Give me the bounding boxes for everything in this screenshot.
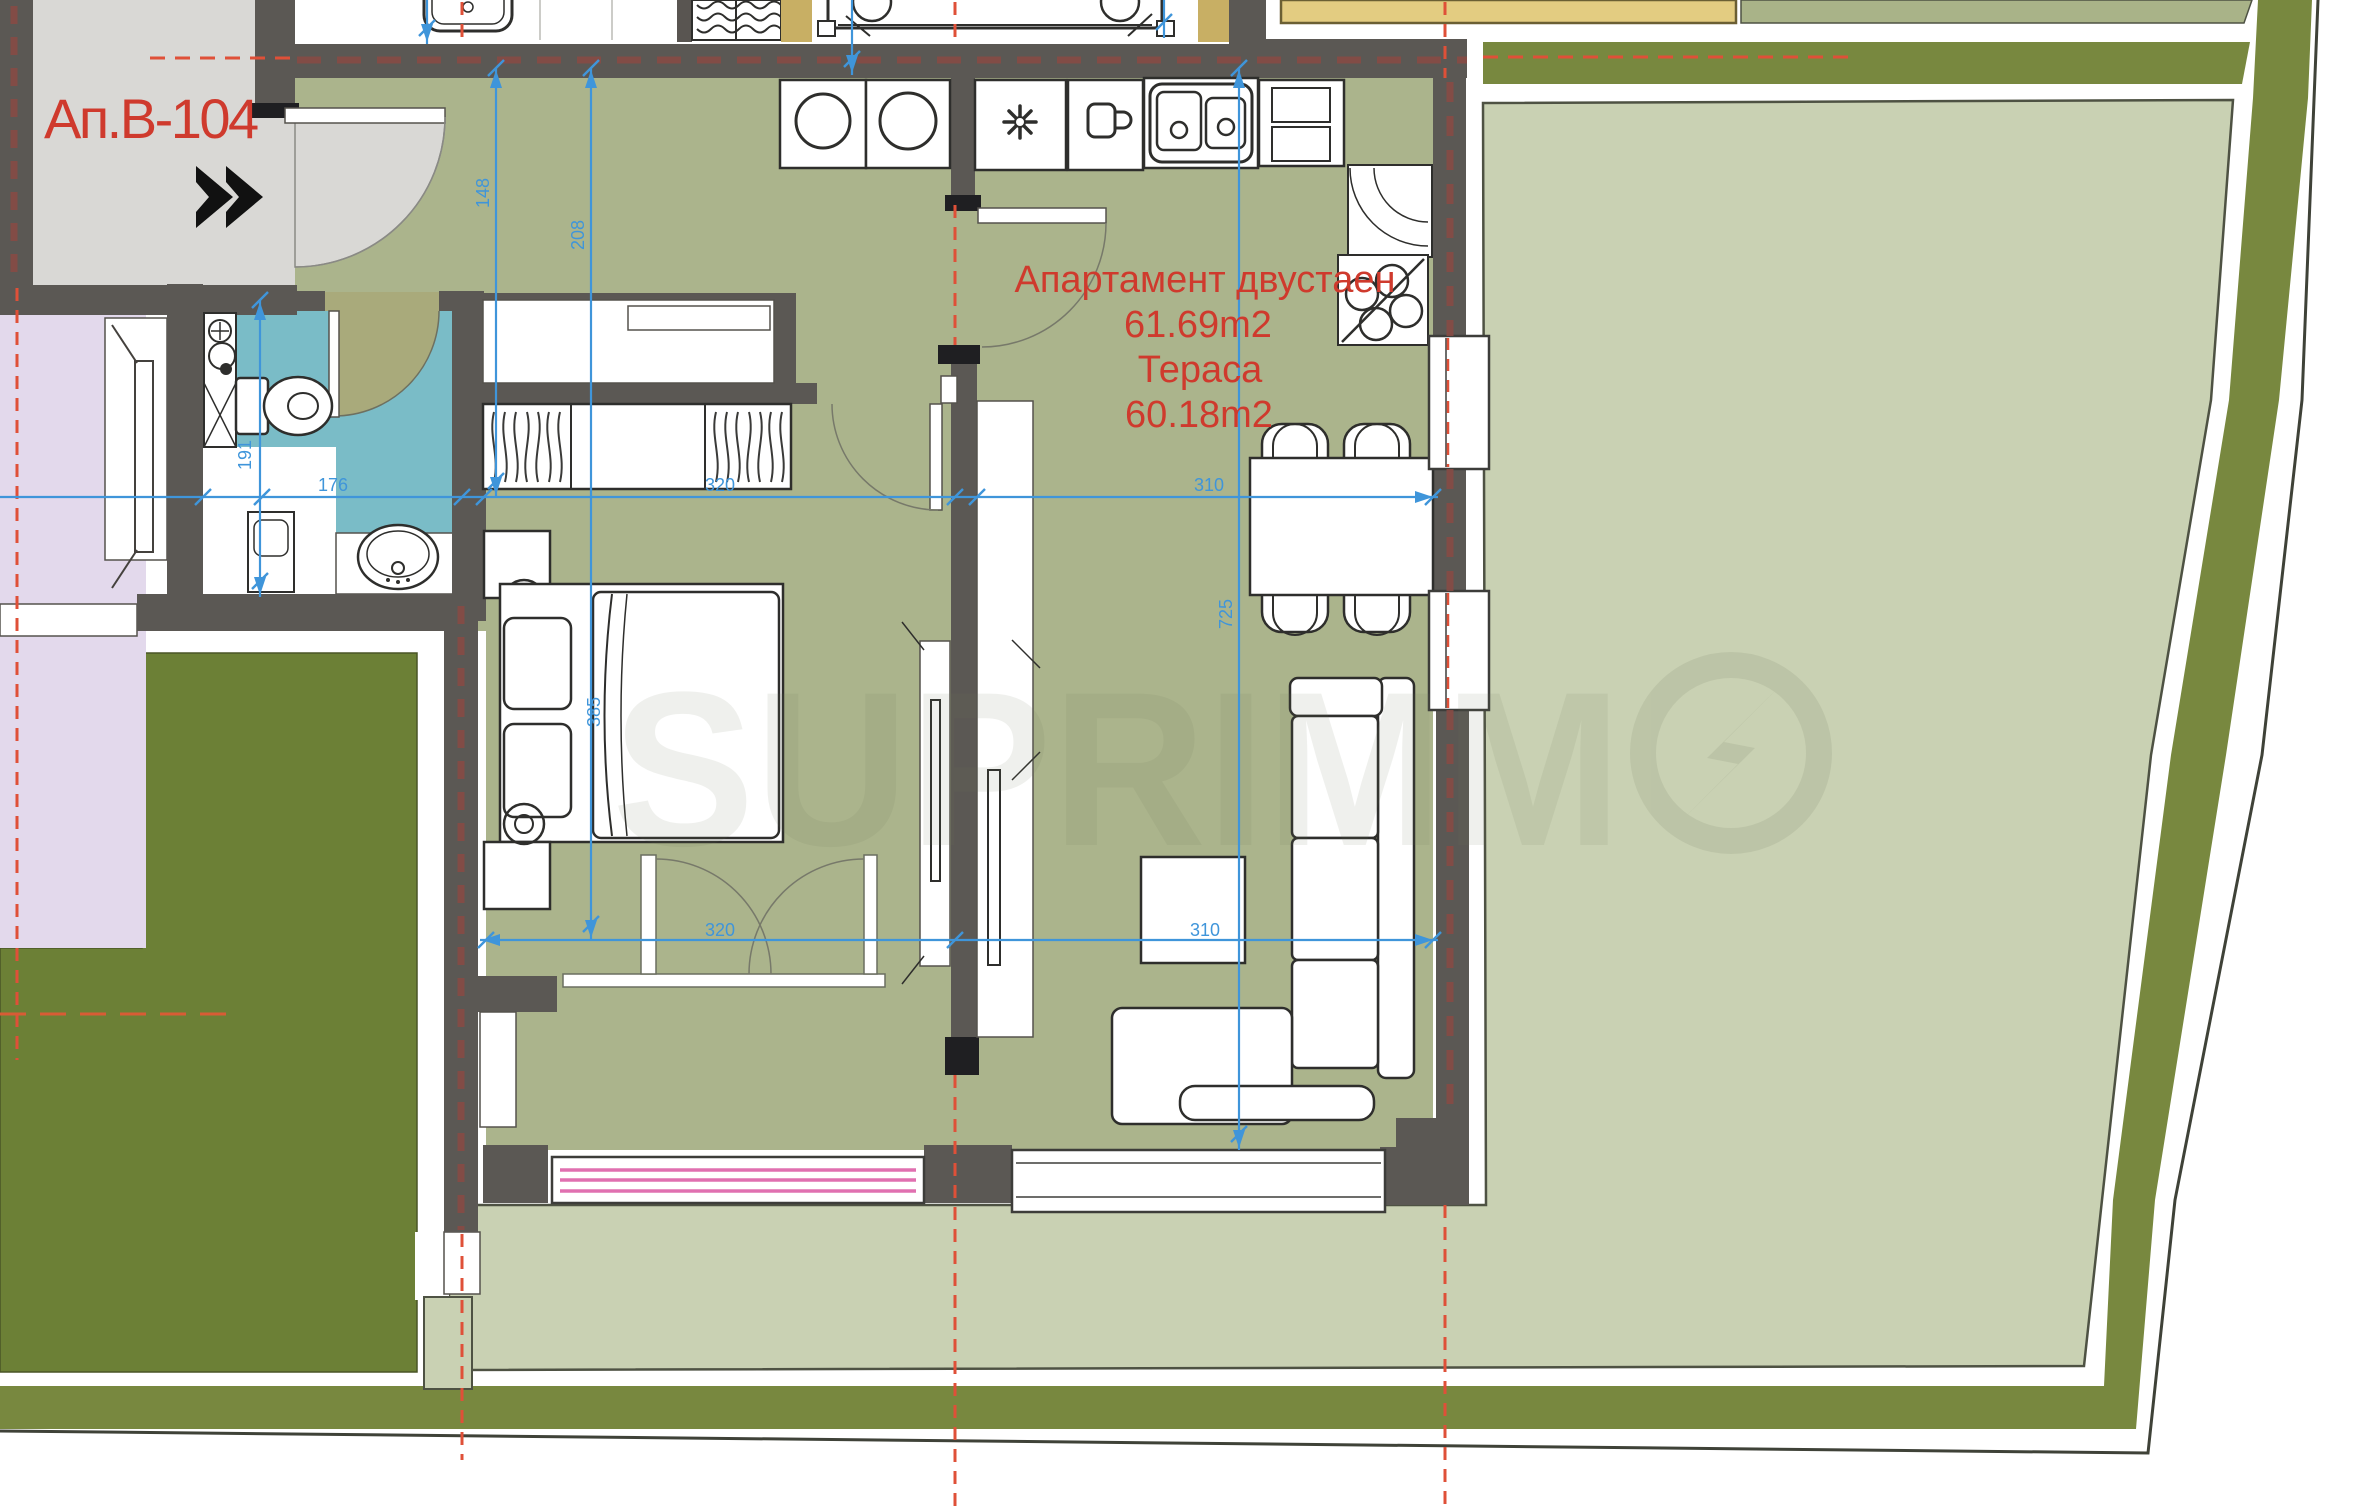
svg-text:725: 725 [1216, 599, 1236, 629]
svg-text:Апартамент двустаен: Апартамент двустаен [1014, 259, 1395, 301]
svg-text:310: 310 [1194, 475, 1224, 495]
svg-text:Ап.В-104: Ап.В-104 [44, 87, 258, 150]
svg-text:385: 385 [584, 697, 604, 727]
svg-text:208: 208 [568, 220, 588, 250]
svg-text:SUPRIMM: SUPRIMM [612, 646, 1622, 892]
svg-text:60.18m2: 60.18m2 [1125, 394, 1273, 436]
svg-text:61.69m2: 61.69m2 [1124, 304, 1272, 346]
svg-text:148: 148 [473, 178, 493, 208]
svg-text:Тераса: Тераса [1138, 349, 1263, 391]
svg-text:310: 310 [1190, 920, 1220, 940]
svg-text:320: 320 [705, 475, 735, 495]
svg-text:320: 320 [705, 920, 735, 940]
svg-text:176: 176 [318, 475, 348, 495]
svg-text:191: 191 [235, 440, 255, 470]
